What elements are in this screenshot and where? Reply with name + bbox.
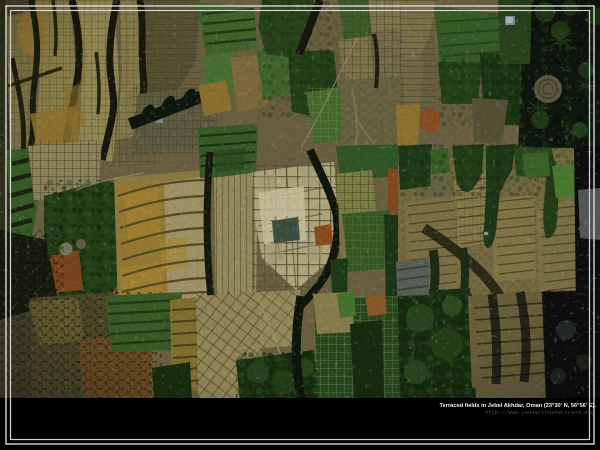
svg-text:http://www.yannarthusbertrand.: http://www.yannarthusbertrand.org bbox=[485, 409, 594, 416]
